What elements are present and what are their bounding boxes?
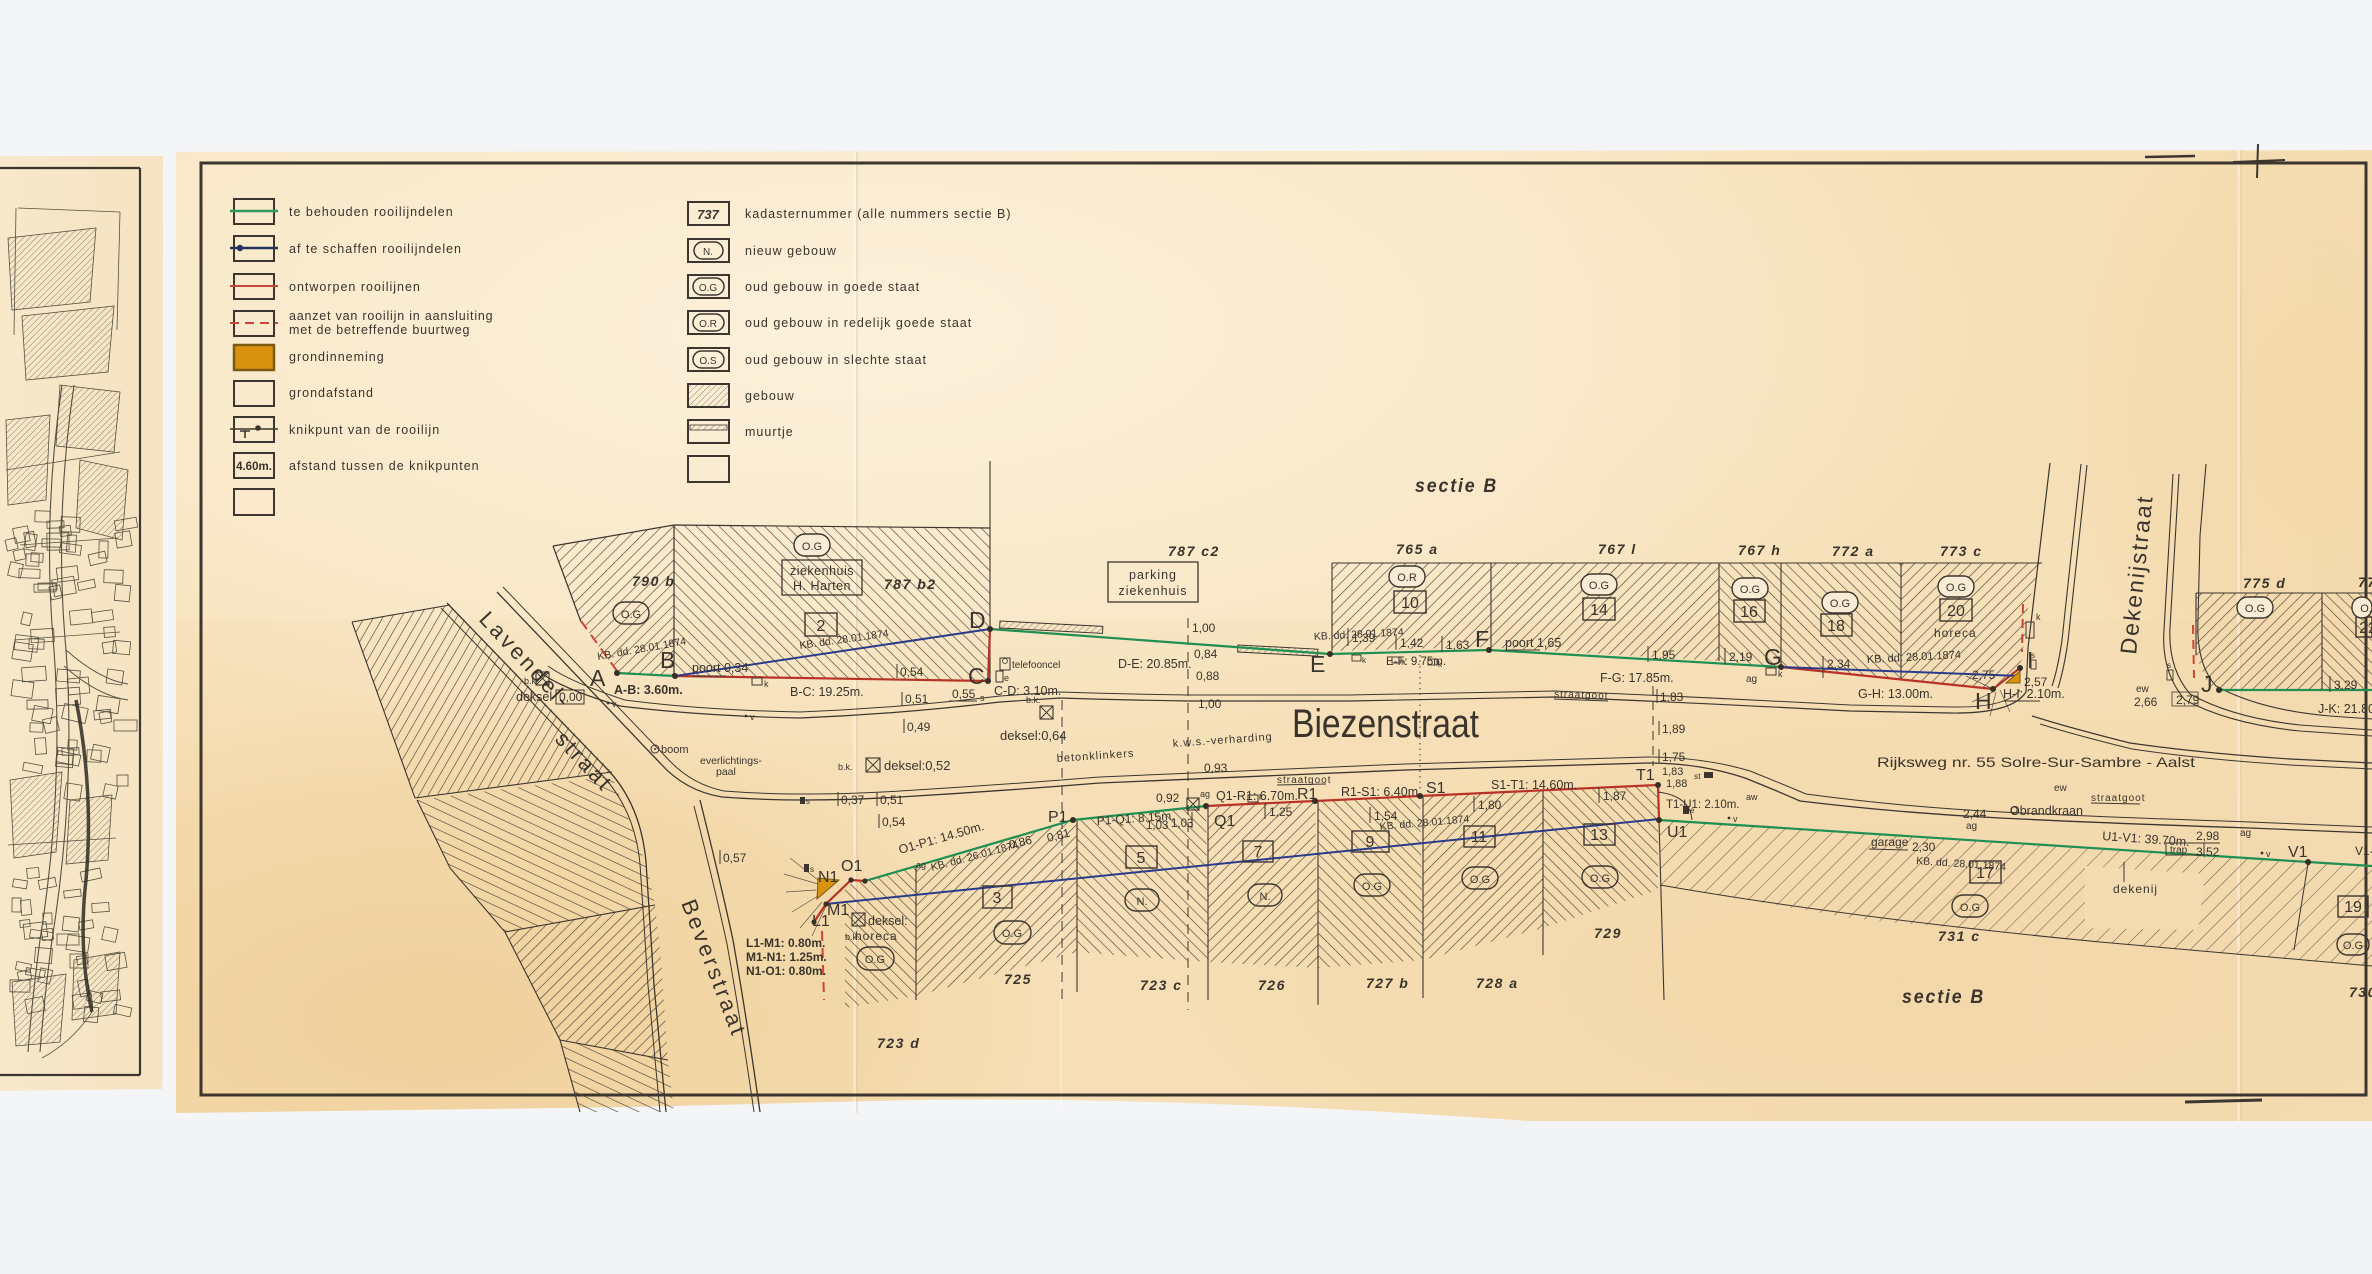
svg-text:U1: U1	[1667, 824, 1688, 841]
svg-text:knikpunt van de rooilijn: knikpunt van de rooilijn	[289, 423, 440, 437]
svg-text:1,88: 1,88	[1666, 778, 1687, 790]
svg-text:0,92: 0,92	[1156, 791, 1180, 805]
svg-text:O.G: O.G	[1946, 582, 1966, 594]
svg-text:v: v	[612, 699, 617, 709]
svg-text:horeca: horeca	[1934, 626, 1977, 640]
svg-text:ag: ag	[1966, 821, 1977, 832]
svg-text:9: 9	[1366, 834, 1375, 851]
svg-text:772 a: 772 a	[1832, 543, 1875, 559]
svg-text:723 d: 723 d	[877, 1035, 920, 1051]
svg-text:Q1: Q1	[1214, 813, 1235, 830]
svg-text:oud gebouw in slechte staat: oud gebouw in slechte staat	[745, 353, 927, 367]
svg-text:deksel:: deksel:	[868, 914, 908, 928]
svg-text:N.: N.	[703, 247, 713, 258]
svg-text:737: 737	[697, 207, 719, 222]
svg-text:oud gebouw in goede staat: oud gebouw in goede staat	[745, 280, 920, 294]
svg-text:S1-T1: 14.60m.: S1-T1: 14.60m.	[1491, 778, 1577, 792]
svg-text:parking: parking	[1129, 568, 1177, 582]
svg-text:2,30: 2,30	[1912, 840, 1936, 854]
svg-text:767 l: 767 l	[1598, 541, 1637, 557]
svg-text:723 c: 723 c	[1140, 977, 1183, 993]
svg-text:ag: ag	[2240, 828, 2251, 839]
svg-text:O.G: O.G	[2245, 603, 2265, 615]
svg-text:767 h: 767 h	[1738, 542, 1781, 558]
svg-text:2,66: 2,66	[2134, 695, 2158, 709]
svg-text:s: s	[810, 865, 814, 874]
svg-text:ag: ag	[1746, 674, 1757, 685]
svg-text:aanzet van rooilijn in aanslui: aanzet van rooilijn in aansluiting	[289, 309, 493, 323]
svg-text:0,54: 0,54	[900, 665, 924, 679]
svg-text:O.G: O.G	[621, 609, 641, 621]
svg-text:v: v	[2266, 849, 2271, 859]
svg-text:L1-M1: 0.80m.: L1-M1: 0.80m.	[746, 936, 825, 950]
svg-text:14: 14	[1590, 602, 1608, 619]
svg-text:2,75: 2,75	[1972, 668, 1996, 682]
svg-text:O.G: O.G	[865, 954, 885, 966]
svg-text:kadasternummer (alle nummers s: kadasternummer (alle nummers sectie B)	[745, 207, 1012, 221]
svg-text:aw: aw	[1746, 792, 1758, 802]
svg-text:5: 5	[1137, 850, 1146, 867]
svg-text:3,29: 3,29	[2334, 678, 2358, 692]
svg-text:C: C	[968, 663, 985, 689]
svg-text:boom: boom	[661, 744, 689, 756]
svg-text:Obrandkraan: Obrandkraan	[2010, 804, 2083, 818]
svg-text:S1: S1	[1426, 780, 1446, 797]
svg-text:0,88: 0,88	[1196, 669, 1220, 683]
svg-text:ziekenhuis: ziekenhuis	[790, 564, 854, 578]
svg-text:s: s	[980, 693, 985, 703]
svg-text:1,25: 1,25	[1269, 805, 1293, 819]
svg-text:te behouden rooilijndelen: te behouden rooilijndelen	[289, 205, 454, 219]
svg-text:V1: V1	[2288, 844, 2308, 861]
svg-text:k: k	[2036, 612, 2041, 622]
svg-text:P1: P1	[1048, 809, 1068, 826]
svg-text:e: e	[1004, 673, 1009, 683]
svg-text:nieuw gebouw: nieuw gebouw	[745, 244, 837, 258]
svg-text:787 b2: 787 b2	[884, 576, 937, 592]
svg-text:garage: garage	[1871, 835, 1909, 849]
svg-text:k: k	[1778, 669, 1783, 679]
svg-text:dekenij: dekenij	[2113, 882, 2158, 896]
svg-text:A: A	[590, 665, 606, 691]
svg-text:1,80: 1,80	[1478, 798, 1502, 812]
svg-text:straatgoot: straatgoot	[2091, 793, 2145, 804]
svg-text:sectie B: sectie B	[1902, 987, 1985, 1008]
svg-text:ag: ag	[1200, 789, 1210, 799]
svg-text:horeca: horeca	[855, 929, 898, 943]
svg-text:O.G: O.G	[802, 541, 822, 553]
svg-text:7: 7	[1254, 844, 1263, 861]
svg-text:2: 2	[817, 618, 826, 635]
svg-text:G: G	[1764, 644, 1782, 670]
svg-text:0,55: 0,55	[952, 687, 976, 701]
svg-text:0,49: 0,49	[907, 720, 931, 734]
svg-text:1,83: 1,83	[1662, 766, 1683, 778]
svg-text:1,63: 1,63	[1446, 638, 1470, 652]
svg-text:787 c2: 787 c2	[1168, 543, 1220, 559]
svg-text:O.G: O.G	[1960, 902, 1980, 914]
svg-text:O.G: O.G	[1590, 873, 1610, 885]
svg-text:O.G: O.G	[1589, 580, 1609, 592]
svg-text:trap: trap	[2170, 845, 2188, 856]
svg-text:deksel:0,64: deksel:0,64	[1000, 728, 1067, 743]
svg-text:790 b: 790 b	[632, 573, 675, 589]
svg-text:0,57: 0,57	[723, 851, 747, 865]
svg-text:2,34: 2,34	[1827, 657, 1851, 671]
svg-text:18: 18	[1827, 618, 1845, 635]
svg-text:ziekenhuis: ziekenhuis	[1118, 584, 1187, 598]
svg-text:731 c: 731 c	[1938, 928, 1981, 944]
svg-text:0,84: 0,84	[1194, 647, 1218, 661]
svg-text:Biezenstraat: Biezenstraat	[1292, 702, 1479, 746]
svg-text:1,42: 1,42	[1400, 636, 1424, 650]
svg-text:N1: N1	[818, 869, 839, 886]
svg-text:O.G: O.G	[2343, 940, 2363, 952]
svg-text:O.G: O.G	[1830, 598, 1850, 610]
svg-text:1,75: 1,75	[1662, 750, 1686, 764]
svg-text:s: s	[2031, 651, 2035, 660]
svg-text:1,39: 1,39	[1352, 631, 1376, 645]
svg-text:B-C: 19.25m.: B-C: 19.25m.	[790, 685, 864, 699]
svg-text:grondinneming: grondinneming	[289, 350, 385, 364]
svg-text:1,89: 1,89	[1662, 722, 1686, 736]
svg-text:Q1-R1: 6.70m.: Q1-R1: 6.70m.	[1216, 789, 1298, 803]
svg-text:v: v	[1733, 814, 1738, 824]
svg-text:s: s	[2167, 661, 2171, 670]
svg-text:O.R: O.R	[1397, 572, 1417, 584]
svg-text:b.k.: b.k.	[838, 762, 853, 772]
svg-text:2,98: 2,98	[2196, 829, 2220, 843]
svg-text:telefooncel: telefooncel	[1012, 660, 1060, 671]
svg-text:poort 0,34: poort 0,34	[692, 661, 748, 675]
svg-text:725: 725	[1004, 971, 1032, 987]
svg-text:gebouw: gebouw	[745, 389, 795, 403]
svg-text:grondafstand: grondafstand	[289, 386, 374, 400]
svg-text:F: F	[1475, 626, 1489, 652]
svg-text:F-G: 17.85m.: F-G: 17.85m.	[1600, 671, 1674, 685]
svg-text:R1-S1: 6.40m.: R1-S1: 6.40m.	[1341, 785, 1422, 799]
svg-text:ontworpen rooilijnen: ontworpen rooilijnen	[289, 280, 421, 294]
svg-text:muurtje: muurtje	[745, 425, 794, 439]
svg-text:af te schaffen rooilijndelen: af te schaffen rooilijndelen	[289, 242, 462, 256]
svg-text:D-E: 20.85m.: D-E: 20.85m.	[1118, 657, 1192, 671]
svg-text:N.: N.	[1137, 896, 1148, 908]
svg-text:k: k	[764, 679, 769, 689]
svg-text:0,51: 0,51	[880, 793, 904, 807]
svg-text:O.R: O.R	[699, 319, 717, 330]
svg-text:ew: ew	[2054, 783, 2068, 794]
svg-text:b.k.: b.k.	[845, 932, 860, 942]
svg-text:oud gebouw in redelijk goede s: oud gebouw in redelijk goede staat	[745, 316, 972, 330]
svg-text:O.G: O.G	[699, 283, 718, 294]
svg-text:22: 22	[2359, 620, 2372, 637]
svg-text:1,00: 1,00	[1198, 697, 1222, 711]
svg-text:ag: ag	[916, 860, 926, 870]
svg-text:0,37: 0,37	[841, 793, 865, 807]
svg-text:sectie B: sectie B	[1415, 476, 1498, 497]
svg-text:727 b: 727 b	[1366, 975, 1409, 991]
svg-text:2,44: 2,44	[1963, 807, 1987, 821]
svg-text:1,83: 1,83	[1660, 690, 1684, 704]
svg-text:20: 20	[1947, 603, 1965, 620]
svg-text:775 d: 775 d	[2243, 575, 2286, 591]
svg-text:10: 10	[1401, 595, 1419, 612]
svg-text:e: e	[1690, 806, 1695, 815]
svg-text:G-H: 13.00m.: G-H: 13.00m.	[1858, 687, 1933, 701]
svg-text:H-I: 2.10m.: H-I: 2.10m.	[2003, 687, 2065, 701]
svg-text:4.60m.: 4.60m.	[236, 461, 272, 473]
svg-text:2,79: 2,79	[2176, 693, 2200, 707]
svg-text:b.k.: b.k.	[524, 676, 539, 686]
svg-text:0,51: 0,51	[905, 692, 929, 706]
svg-text:O.G: O.G	[1002, 928, 1022, 940]
svg-text:s: s	[806, 797, 810, 806]
svg-text:afstand tussen de knikpunten: afstand tussen de knikpunten	[289, 459, 480, 473]
svg-text:O.G: O.G	[1362, 881, 1382, 893]
svg-text:M1-N1: 1.25m.: M1-N1: 1.25m.	[746, 950, 827, 964]
svg-text:16: 16	[1740, 604, 1758, 621]
svg-text:0,93: 0,93	[1204, 761, 1228, 775]
svg-text:M1: M1	[827, 902, 849, 919]
svg-text:st: st	[1694, 771, 1701, 781]
svg-text:D: D	[969, 607, 986, 633]
svg-text:3: 3	[993, 890, 1002, 907]
svg-text:ew: ew	[2136, 684, 2150, 695]
svg-text:1,87: 1,87	[1603, 789, 1627, 803]
svg-text:V1-: V1-	[2355, 844, 2372, 858]
svg-text:E: E	[1310, 651, 1325, 677]
svg-text:paal: paal	[716, 766, 736, 778]
svg-text:726: 726	[1258, 977, 1286, 993]
svg-text:730: 730	[2349, 984, 2372, 1000]
svg-text:11: 11	[1471, 829, 1488, 846]
svg-text:T1: T1	[1636, 767, 1655, 784]
svg-text:O.S: O.S	[699, 356, 717, 367]
svg-text:729: 729	[1594, 925, 1622, 941]
svg-text:J: J	[2201, 671, 2213, 697]
svg-text:N.: N.	[1260, 891, 1271, 903]
svg-text:b.k.: b.k.	[1026, 695, 1041, 705]
svg-text:0,54: 0,54	[882, 815, 906, 829]
svg-text:19: 19	[2344, 899, 2362, 916]
svg-text:O.G: O.G	[1470, 874, 1490, 886]
svg-text:1,00: 1,00	[1192, 621, 1216, 635]
svg-text:1,95: 1,95	[1652, 648, 1676, 662]
svg-text:3,52: 3,52	[2196, 845, 2220, 859]
svg-text:1,03: 1,03	[1171, 818, 1193, 830]
svg-text:765 a: 765 a	[1396, 541, 1439, 557]
svg-text:13: 13	[1590, 827, 1608, 844]
svg-text:Rijksweg nr. 55 Solre-Sur-Sa: Rijksweg nr. 55 Solre-Sur-Sambre - Aalst	[1877, 754, 2195, 770]
svg-text:N1-O1: 0.80m.: N1-O1: 0.80m.	[746, 964, 826, 978]
svg-text:728 a: 728 a	[1476, 975, 1519, 991]
svg-text:J-K: 21.80m.: J-K: 21.80m.	[2318, 702, 2372, 716]
svg-text:H. Harten: H. Harten	[793, 579, 851, 593]
svg-text:O1: O1	[841, 858, 862, 875]
svg-text:R1: R1	[1297, 786, 1318, 803]
svg-text:1,03: 1,03	[1146, 820, 1168, 832]
svg-text:O.G: O.G	[1740, 584, 1760, 596]
svg-text:773 c: 773 c	[1940, 543, 1983, 559]
svg-text:O.: O.	[2360, 603, 2372, 615]
svg-text:T1-U1: 2.10m.: T1-U1: 2.10m.	[1666, 799, 1740, 811]
svg-text:77: 77	[2358, 574, 2372, 590]
svg-text:H: H	[1975, 688, 1992, 714]
svg-text:v: v	[750, 712, 755, 722]
svg-text:deksel: deksel	[516, 690, 552, 704]
svg-text:poort 1,65: poort 1,65	[1505, 636, 1561, 650]
svg-text:deksel:0,52: deksel:0,52	[884, 758, 951, 773]
svg-text:2,19: 2,19	[1729, 650, 1753, 664]
svg-text:met de betreffende buurtweg: met de betreffende buurtweg	[289, 323, 470, 337]
svg-text:0,00: 0,00	[559, 690, 583, 704]
svg-text:A-B: 3.60m.: A-B: 3.60m.	[614, 683, 683, 697]
